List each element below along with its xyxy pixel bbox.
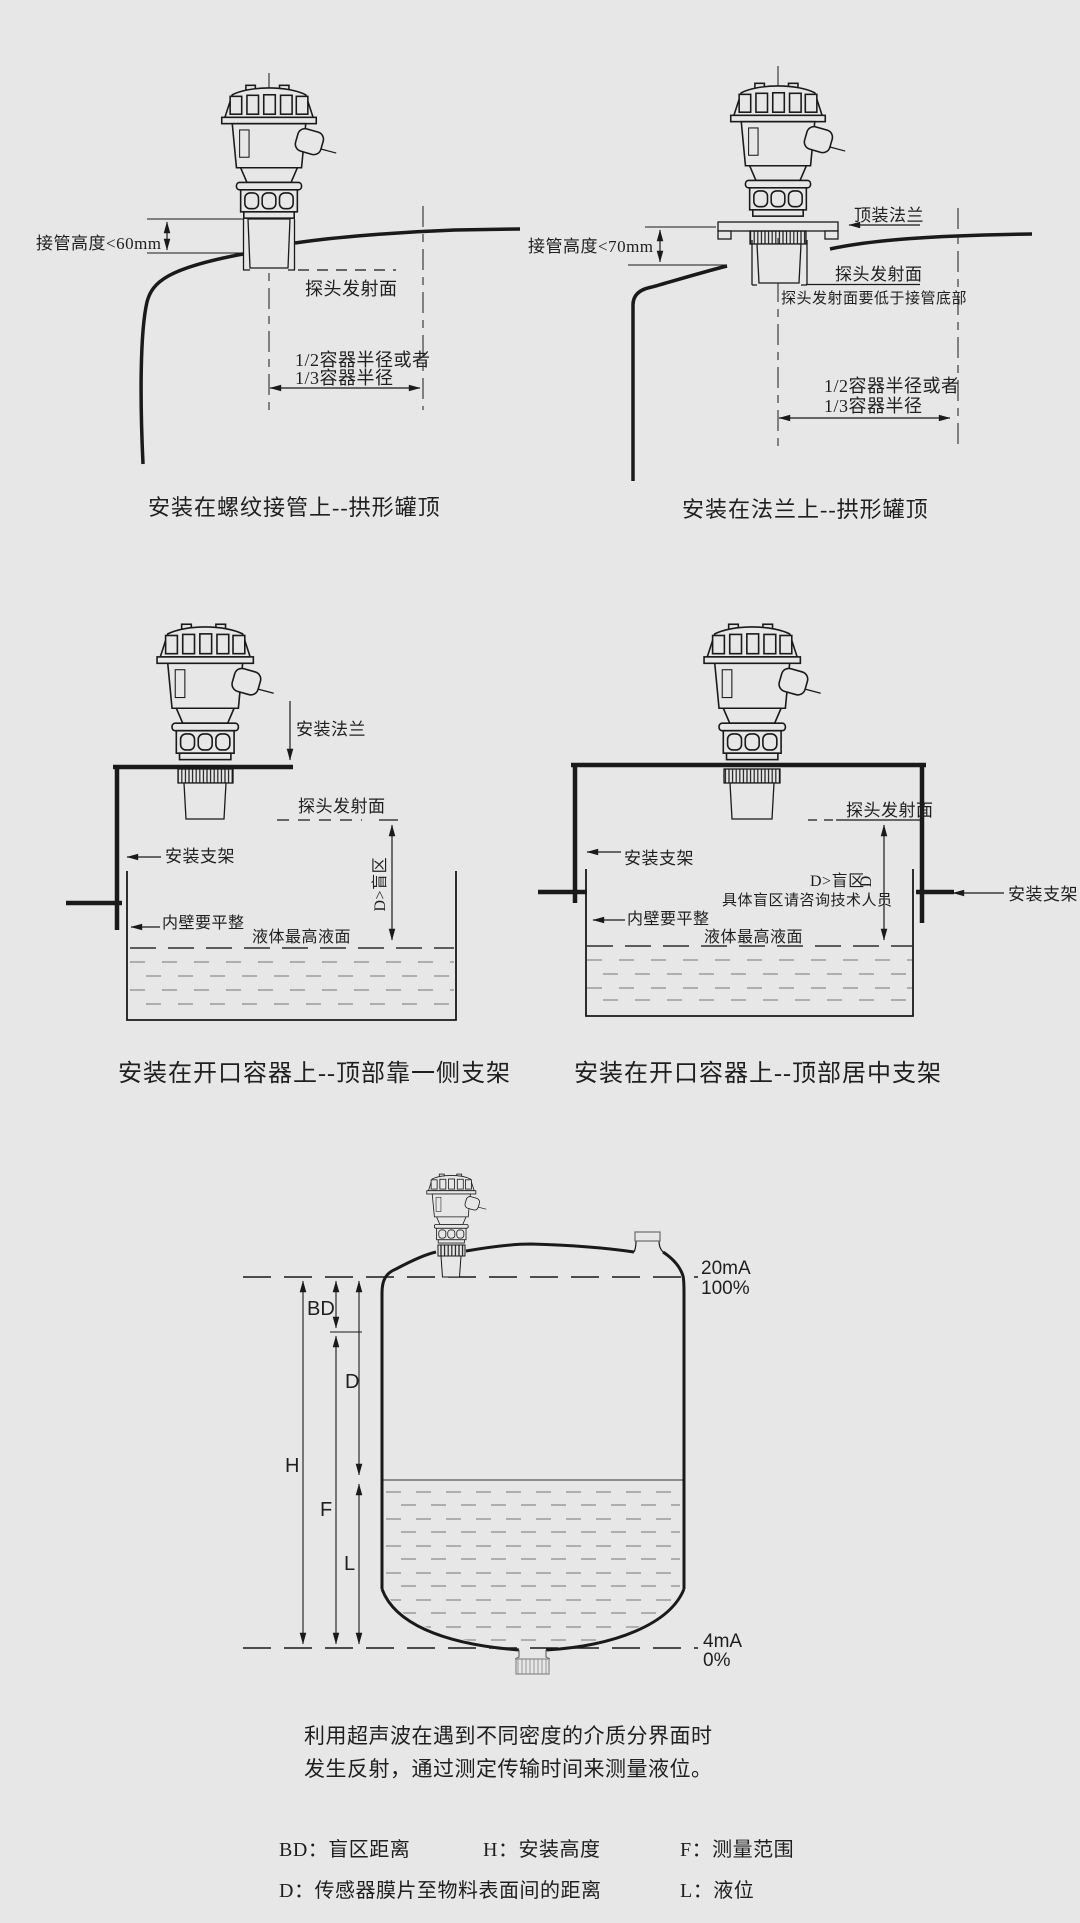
label-emission-surface-ml: 探头发射面 [298,797,386,817]
label-pipe-height-60: 接管高度<60mm [36,234,162,254]
label-radius-option1-tr: 1/2容器半径或者 [824,376,960,397]
label-20ma: 20mA [701,1258,751,1280]
dim-label-d: D [345,1371,359,1394]
label-emission-surface-tr: 探头发射面 [835,265,923,285]
dim-label-l: L [344,1553,355,1576]
description-line1: 利用超声波在遇到不同密度的介质分界面时 [304,1724,713,1748]
caption-top-right: 安装在法兰上--拱形罐顶 [682,497,929,522]
label-emission-note-tr: 探头发射面要低于接管底部 [781,291,967,308]
dim-label-bd: BD [307,1298,335,1321]
dim-label-f: F [320,1499,332,1522]
label-max-level-ml: 液体最高液面 [252,929,351,947]
label-bracket-right-mr: 安装支架 [1008,885,1078,905]
label-emission-surface-mr: 探头发射面 [846,801,934,821]
label-top-flange: 顶装法兰 [854,206,924,226]
label-mounting-flange: 安装法兰 [296,720,366,740]
label-0pct: 0% [703,1650,730,1672]
legend-h: H：安装高度 [483,1839,600,1862]
label-blind-zone-ml: D>盲区 [372,839,390,929]
label-blind-zone-note-mr: 具体盲区请咨询技术人员 [722,893,893,910]
caption-middle-right: 安装在开口容器上--顶部居中支架 [574,1061,942,1089]
label-blind-zone-mr: D>盲区 [810,873,865,891]
dim-label-h: H [285,1455,299,1478]
legend-l: L：液位 [680,1880,754,1903]
label-inner-wall-ml: 内壁要平整 [162,915,245,933]
legend-bd: BD：盲区距离 [279,1839,410,1862]
label-bracket-ml: 安装支架 [165,847,235,867]
caption-middle-left: 安装在开口容器上--顶部靠一侧支架 [118,1061,511,1089]
label-radius-option2-tr: 1/3容器半径 [824,396,923,417]
legend-d: D：传感器膜片至物料表面间的距离 [279,1880,601,1903]
label-bracket-left-mr: 安装支架 [624,849,694,869]
legend-f: F：测量范围 [680,1839,794,1862]
label-emission-surface-tl: 探头发射面 [305,279,398,300]
label-pipe-height-70: 接管高度<70mm [528,237,654,257]
diagram-linework [0,0,1080,1923]
page: 接管高度<60mm 探头发射面 1/2容器半径或者 1/3容器半径 安装在螺纹接… [0,0,1080,1923]
caption-top-left: 安装在螺纹接管上--拱形罐顶 [148,495,441,520]
label-max-level-mr: 液体最高液面 [704,929,803,947]
label-blind-zone-d-mr: D [858,872,876,890]
label-radius-option2-tl: 1/3容器半径 [295,368,394,389]
label-100pct: 100% [701,1278,750,1300]
description-line2: 发生反射，通过测定传输时间来测量液位。 [304,1757,713,1781]
label-inner-wall-mr: 内壁要平整 [627,911,710,929]
